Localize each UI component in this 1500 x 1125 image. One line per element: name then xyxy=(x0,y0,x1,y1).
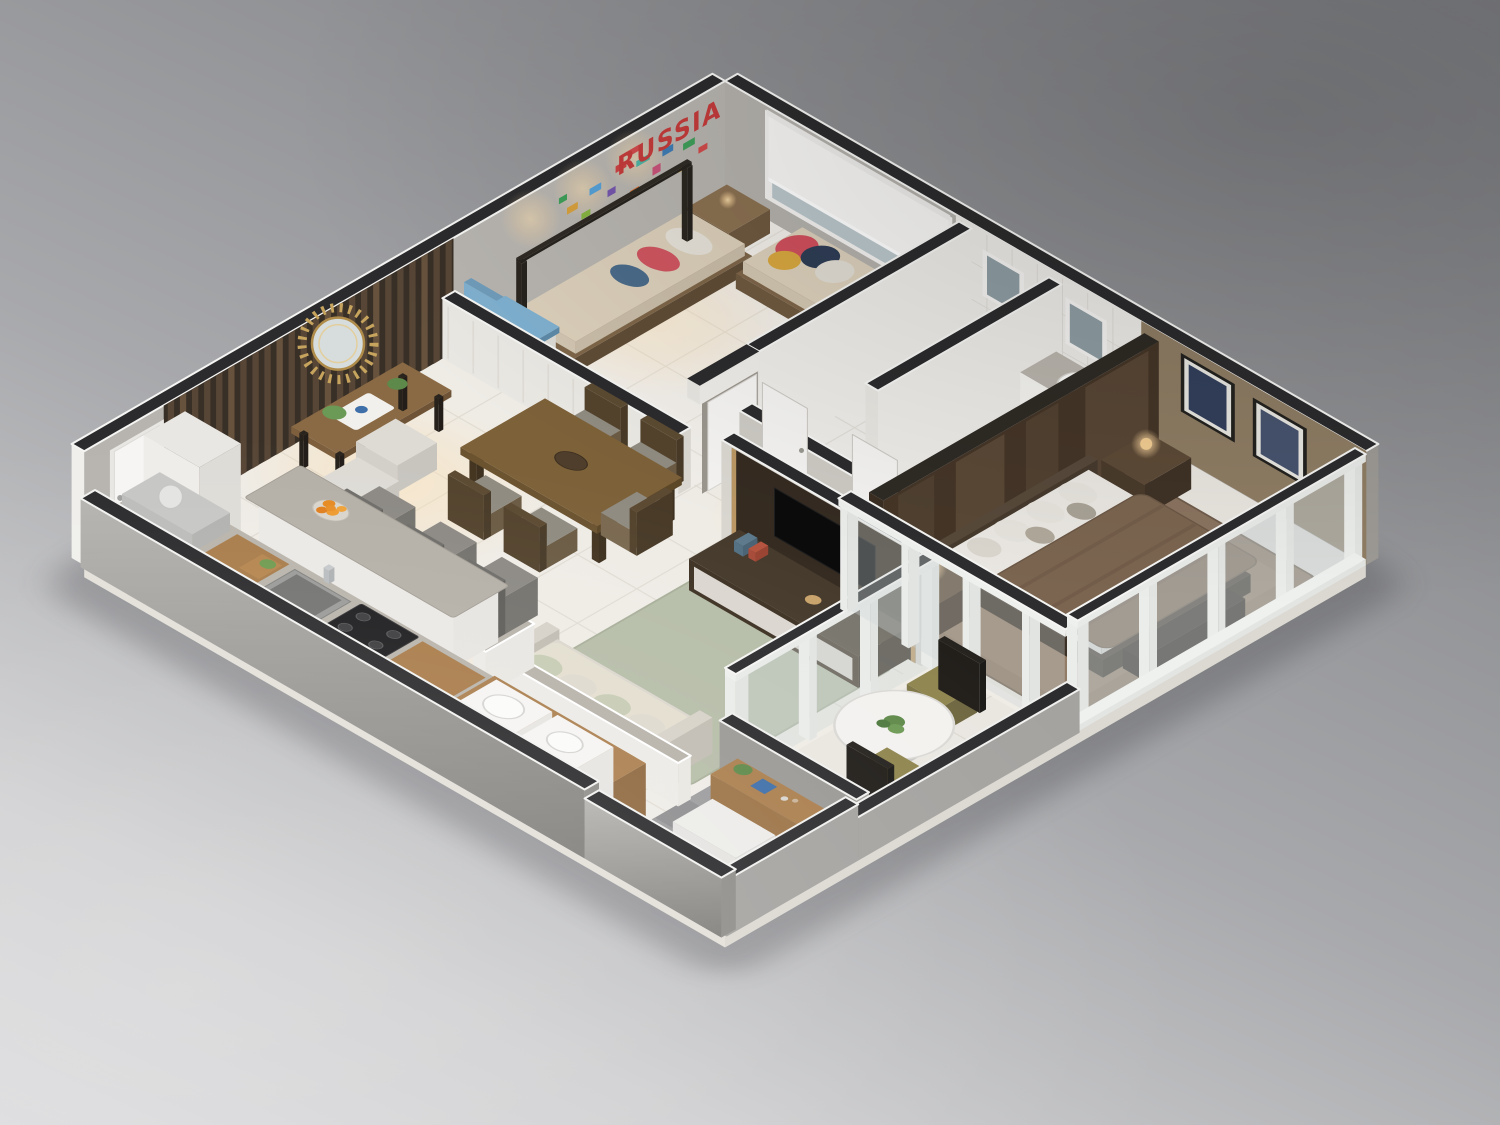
kids-lamp-glow xyxy=(719,191,737,209)
wall-top-right xyxy=(1366,444,1379,565)
dining-chair-back-left xyxy=(630,508,637,556)
wall-slats-slat xyxy=(409,260,415,378)
screenshot-root: RUSSIA xyxy=(0,0,1500,1125)
door-handle xyxy=(799,448,804,453)
wall-slats-slat xyxy=(240,358,246,476)
dining-panel-texture xyxy=(522,350,524,404)
console-leg-right xyxy=(304,433,309,469)
master-lamp-shade xyxy=(1140,438,1152,450)
dining-panel-texture xyxy=(472,321,474,375)
dining-panel-texture xyxy=(447,306,449,360)
wall-slats-slat xyxy=(264,344,270,462)
console-leg-left xyxy=(299,433,304,469)
console-leg-right xyxy=(439,397,444,433)
dining-panel-texture xyxy=(497,335,499,389)
wall-slats-slat xyxy=(252,351,258,469)
balcony-chair-back-right xyxy=(980,660,986,713)
halfwall-sofa-back-right xyxy=(678,756,691,807)
floorplan-svg: RUSSIA xyxy=(0,0,1500,1125)
glass-post-right xyxy=(909,537,920,648)
wall-slats-slat xyxy=(277,337,283,455)
canopy-post-left xyxy=(682,165,687,242)
wall-slats-slat xyxy=(421,253,427,371)
sunburst-mirror-glass xyxy=(312,318,364,370)
dining-chair-back-right xyxy=(484,491,491,540)
glass-post-left xyxy=(840,504,847,613)
glass-post-right xyxy=(810,632,817,741)
wall-terrace-exterior-right xyxy=(721,869,735,937)
drying-plate xyxy=(159,485,183,509)
wall-slats-slat xyxy=(434,246,440,364)
glass-post-left xyxy=(1022,609,1029,718)
console-leg-left xyxy=(434,397,439,433)
glass-post-right xyxy=(847,502,858,613)
glass-post-left xyxy=(799,630,810,741)
dining-chair-back-right xyxy=(540,523,547,572)
canopy-post-right xyxy=(687,165,692,242)
isometric-floorplan: RUSSIA xyxy=(32,74,1418,985)
glass-post-left xyxy=(901,539,908,648)
